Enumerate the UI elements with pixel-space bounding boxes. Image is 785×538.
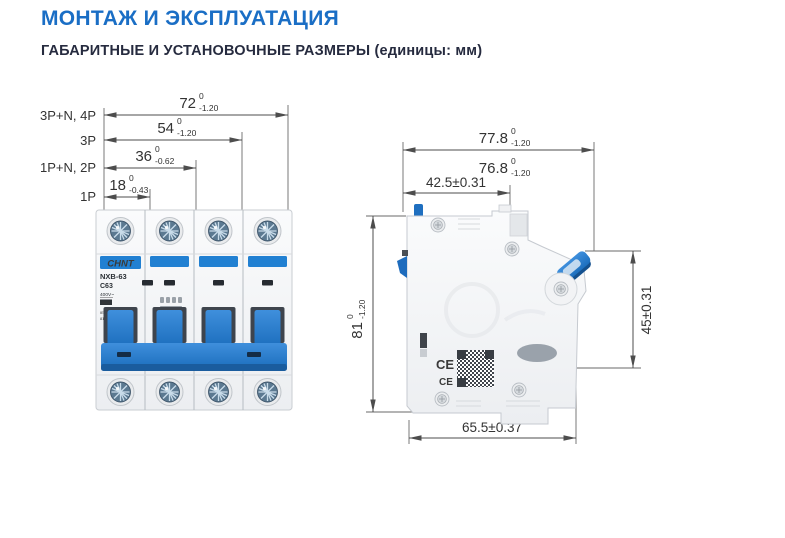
handle-tie-bar-shadow — [101, 364, 287, 371]
dim-77-8-value: 77.8 — [479, 130, 508, 147]
current-rating-text: C63 — [100, 283, 113, 290]
front-recess-oval — [517, 344, 557, 362]
housing-screw-bottom-front — [512, 383, 526, 397]
dimension-drawings: 3P+N, 4P 3P 1P+N, 2P 1P 72 0 -1.20 54 0 … — [0, 0, 785, 538]
dim-54-tol-upper: 0 — [177, 116, 182, 126]
voltage-text: 400V~ — [100, 292, 114, 298]
dim-81-group: 81 0 -1.20 — [345, 299, 367, 338]
dim-77-8-tol-lower: -1.20 — [511, 138, 531, 148]
module-blue-bars — [150, 256, 287, 267]
pole-config-labels: 3P+N, 4P 3P 1P+N, 2P 1P — [40, 108, 96, 204]
pole-label-2p: 1P+N, 2P — [40, 160, 96, 175]
catalog-page: МОНТАЖ И ЭКСПЛУАТАЦИЯ ГАБАРИТНЫЕ И УСТАН… — [0, 0, 785, 538]
dim-81-tol-lower: -1.20 — [357, 299, 367, 319]
dim-81-value: 81 — [349, 322, 366, 339]
dim-18-tol-upper: 0 — [129, 173, 134, 183]
dim-77-8-tol-upper: 0 — [511, 126, 516, 136]
dim-81-tol-upper: 0 — [345, 314, 355, 319]
dim-72-value: 72 — [179, 95, 196, 112]
dim-54-tol-lower: -1.20 — [177, 128, 197, 138]
din-slot-tab — [420, 349, 427, 357]
dim-18-value: 18 — [109, 177, 126, 194]
din-clip-blue — [397, 256, 407, 278]
dim-42-5-value: 42.5±0.31 — [426, 175, 486, 190]
housing-screw-bottom-back — [435, 392, 449, 406]
housing-screw-top — [431, 218, 445, 232]
breaker-side-photo: CE CE — [397, 204, 593, 424]
ce-mark: CE — [436, 357, 454, 372]
dim-18-tol-lower: -0.43 — [129, 185, 149, 195]
pole-label-1p: 1P — [80, 189, 96, 204]
din-slot — [420, 333, 427, 348]
terminal-recess — [510, 214, 527, 236]
model-text: NXB-63 — [100, 272, 127, 281]
dim-36-tol-lower: -0.62 — [155, 156, 175, 166]
dim-54-value: 54 — [157, 120, 174, 137]
brand-logo-text: CHNT — [107, 259, 135, 270]
dim-76-8-tol-lower: -1.20 — [511, 168, 531, 178]
breaking-capacity-text: 6000 — [102, 301, 110, 305]
top-mount-pin — [414, 204, 423, 217]
ce-mark-secondary: CE — [439, 377, 453, 388]
breaker-front-photo: CHNT NXB-63 C63 400V~ 6000 IEC/EN60898-1… — [96, 210, 292, 410]
din-clip-notch — [402, 250, 408, 256]
dim-36-tol-upper: 0 — [155, 144, 160, 154]
housing-screw-mid — [505, 242, 519, 256]
qr-code — [457, 350, 494, 387]
dim-45-value: 45±0.31 — [639, 286, 654, 335]
dim-36-value: 36 — [135, 148, 152, 165]
pivot-screw — [554, 282, 568, 296]
dim-72-tol-upper: 0 — [199, 91, 204, 101]
side-view-drawing: 77.8 0 -1.20 76.8 0 -1.20 42.5±0.31 81 0… — [345, 126, 654, 444]
front-dimension-values: 72 0 -1.20 54 0 -1.20 36 0 -0.62 18 0 -0… — [109, 91, 218, 195]
pole-label-3p: 3P — [80, 133, 96, 148]
front-view-drawing: 3P+N, 4P 3P 1P+N, 2P 1P 72 0 -1.20 54 0 … — [40, 91, 292, 410]
dim-76-8-tol-upper: 0 — [511, 156, 516, 166]
pole-label-4p: 3P+N, 4P — [40, 108, 96, 123]
terminal-top-tab — [499, 205, 511, 212]
dim-72-tol-lower: -1.20 — [199, 103, 219, 113]
